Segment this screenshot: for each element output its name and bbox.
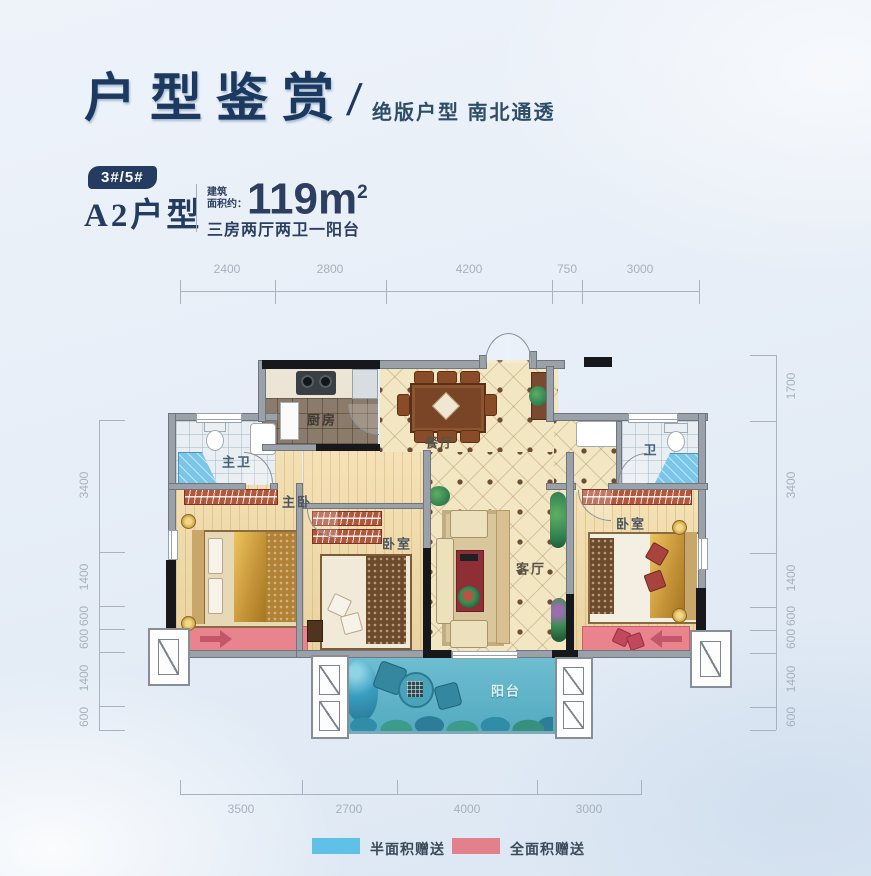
dim-tick bbox=[386, 280, 387, 304]
dim-tick bbox=[180, 780, 181, 795]
wall-black bbox=[423, 650, 451, 658]
entry-door-arc bbox=[485, 333, 509, 363]
room-label-bedroom-right: 卧室 bbox=[616, 514, 646, 533]
dim-tick bbox=[397, 780, 398, 795]
ac-platform bbox=[148, 628, 190, 686]
gift-arrow-icon bbox=[650, 630, 662, 648]
nightstand-icon bbox=[181, 514, 196, 529]
pillow-icon bbox=[208, 578, 223, 614]
gift-arrow-tail bbox=[200, 636, 220, 642]
area-value: 119m2 bbox=[247, 173, 368, 220]
dim-tick bbox=[99, 730, 125, 731]
sofa-main bbox=[436, 538, 454, 624]
nightstand-icon bbox=[672, 608, 687, 623]
window bbox=[628, 413, 678, 423]
long-cabinet bbox=[496, 510, 510, 644]
dim-tick bbox=[750, 421, 776, 422]
dim-line-bottom bbox=[180, 794, 642, 795]
plant-icon bbox=[529, 386, 547, 406]
wall bbox=[258, 360, 266, 422]
bed-blanket bbox=[366, 556, 406, 644]
window bbox=[196, 413, 242, 423]
info-divider bbox=[196, 184, 197, 232]
area-prefix: 建筑 面积约： bbox=[207, 187, 247, 211]
balcony-sliding-door bbox=[452, 651, 518, 659]
dim-label: 600 bbox=[784, 687, 798, 747]
unit-type-name: A2户型 bbox=[84, 188, 202, 236]
chair-icon bbox=[414, 371, 434, 384]
legend-label-full-gift: 全面积赠送 bbox=[510, 839, 585, 859]
stove-burner bbox=[301, 375, 314, 388]
room-label-master-bath: 主卫 bbox=[222, 452, 252, 471]
dim-label: 3400 bbox=[77, 455, 91, 515]
chair-icon bbox=[460, 430, 480, 443]
sink-icon bbox=[576, 421, 618, 447]
tv-icon bbox=[460, 554, 478, 561]
dim-label: 600 bbox=[77, 687, 91, 747]
room-label-kitchen: 厨房 bbox=[307, 410, 337, 429]
louver-vent bbox=[563, 701, 584, 729]
ac-platform bbox=[690, 630, 732, 688]
dim-label: 1700 bbox=[784, 356, 798, 416]
dim-label: 3400 bbox=[784, 455, 798, 515]
wall bbox=[516, 650, 708, 658]
page-title: 户型鉴赏 bbox=[84, 56, 348, 131]
room-label-balcony: 阳台 bbox=[491, 681, 521, 700]
bed-blanket bbox=[234, 532, 266, 622]
wardrobe bbox=[184, 489, 278, 505]
flowers-icon bbox=[458, 586, 480, 608]
sofa-seat bbox=[450, 510, 488, 538]
plant-icon bbox=[428, 486, 450, 506]
dim-label: 3500 bbox=[211, 802, 271, 816]
louver-vent bbox=[563, 667, 584, 695]
room-label-bedroom-mid: 卧室 bbox=[382, 534, 412, 553]
wall-black bbox=[584, 357, 612, 367]
wall-black bbox=[166, 560, 176, 634]
stove-burner bbox=[319, 375, 332, 388]
dim-tick bbox=[582, 280, 583, 304]
dim-line-top bbox=[180, 291, 700, 292]
dim-tick bbox=[99, 606, 125, 607]
wall-black bbox=[696, 588, 706, 636]
dim-line-left bbox=[99, 420, 100, 730]
dim-tick bbox=[750, 553, 776, 554]
entry-door-arc bbox=[508, 333, 532, 363]
layout-description: 三房两厅两卫一阳台 bbox=[207, 216, 360, 240]
plant-icon bbox=[550, 492, 566, 548]
dim-tick bbox=[180, 280, 181, 304]
wall-black bbox=[423, 548, 431, 652]
balcony-rail bbox=[345, 731, 555, 734]
wall bbox=[270, 483, 278, 490]
dim-tick bbox=[275, 280, 276, 304]
wall bbox=[546, 413, 708, 421]
dim-label: 2800 bbox=[300, 262, 360, 276]
chair-icon bbox=[460, 371, 480, 384]
ac-platform bbox=[555, 657, 593, 739]
fridge-icon bbox=[280, 402, 299, 440]
kitchen-sink-icon bbox=[352, 369, 378, 399]
dim-label: 4000 bbox=[437, 802, 497, 816]
building-badge: 3#/5# bbox=[88, 166, 157, 189]
dim-tick bbox=[302, 780, 303, 795]
sofa-seat bbox=[450, 620, 488, 648]
toilet-icon bbox=[206, 430, 224, 451]
window bbox=[168, 530, 178, 560]
louver-vent bbox=[158, 639, 179, 675]
side-table bbox=[307, 620, 323, 642]
dim-line-right bbox=[776, 355, 777, 730]
dim-tick bbox=[699, 280, 700, 304]
page-subtitle: 绝版户型 南北通透 bbox=[372, 96, 556, 125]
ac-platform bbox=[311, 655, 349, 739]
bed-rug bbox=[590, 538, 614, 614]
area-prefix-line1: 建筑 bbox=[207, 187, 247, 199]
nightstand-icon bbox=[672, 520, 687, 535]
wall-black bbox=[566, 594, 574, 652]
area-sup: 2 bbox=[357, 182, 368, 203]
louver-vent bbox=[700, 641, 721, 677]
dim-tick bbox=[750, 707, 776, 708]
dim-label: 750 bbox=[537, 262, 597, 276]
dim-tick bbox=[99, 706, 125, 707]
room-label-bath: 卫 bbox=[643, 440, 658, 459]
dim-tick bbox=[750, 355, 776, 356]
bed-headboard bbox=[192, 530, 205, 624]
wall bbox=[546, 366, 554, 422]
dim-tick bbox=[641, 780, 642, 795]
louver-vent bbox=[319, 665, 340, 695]
wall bbox=[608, 483, 708, 490]
dim-tick bbox=[750, 607, 776, 608]
dim-tick bbox=[537, 780, 538, 795]
dim-label: 2400 bbox=[197, 262, 257, 276]
window bbox=[698, 538, 708, 570]
dim-tick bbox=[99, 629, 125, 630]
dim-tick bbox=[750, 630, 776, 631]
table-top-icon bbox=[407, 681, 423, 697]
chair-icon bbox=[397, 394, 410, 416]
room-label-master-bedroom: 主卧 bbox=[282, 492, 312, 511]
dim-tick bbox=[750, 730, 776, 731]
legend-swatch-full-gift bbox=[452, 838, 500, 854]
dim-tick bbox=[552, 280, 553, 304]
toilet-icon bbox=[667, 431, 685, 452]
area-prefix-line2: 面积约： bbox=[207, 199, 247, 211]
dim-label: 3000 bbox=[610, 262, 670, 276]
louver-vent bbox=[319, 701, 340, 731]
pillow-icon bbox=[208, 538, 223, 574]
legend-label-half-gift: 半面积赠送 bbox=[370, 839, 445, 859]
dim-tick bbox=[99, 552, 125, 553]
dim-tick bbox=[99, 420, 125, 421]
gift-arrow-icon bbox=[220, 630, 232, 648]
bed-runner bbox=[266, 532, 296, 622]
room-label-dining: 餐厅 bbox=[425, 433, 455, 452]
wall-black bbox=[262, 360, 380, 369]
plant-icon bbox=[551, 598, 567, 642]
dim-tick bbox=[750, 653, 776, 654]
dim-tick bbox=[99, 652, 125, 653]
dim-label: 2700 bbox=[319, 802, 379, 816]
dim-label: 4200 bbox=[439, 262, 499, 276]
wall bbox=[168, 483, 246, 490]
room-label-living: 客厅 bbox=[516, 559, 546, 578]
chair-icon bbox=[437, 371, 457, 384]
gift-arrow-tail bbox=[662, 636, 682, 642]
wall-black bbox=[316, 444, 380, 451]
legend-swatch-half-gift bbox=[312, 838, 360, 854]
chair-icon bbox=[484, 394, 497, 416]
dim-label: 3000 bbox=[559, 802, 619, 816]
